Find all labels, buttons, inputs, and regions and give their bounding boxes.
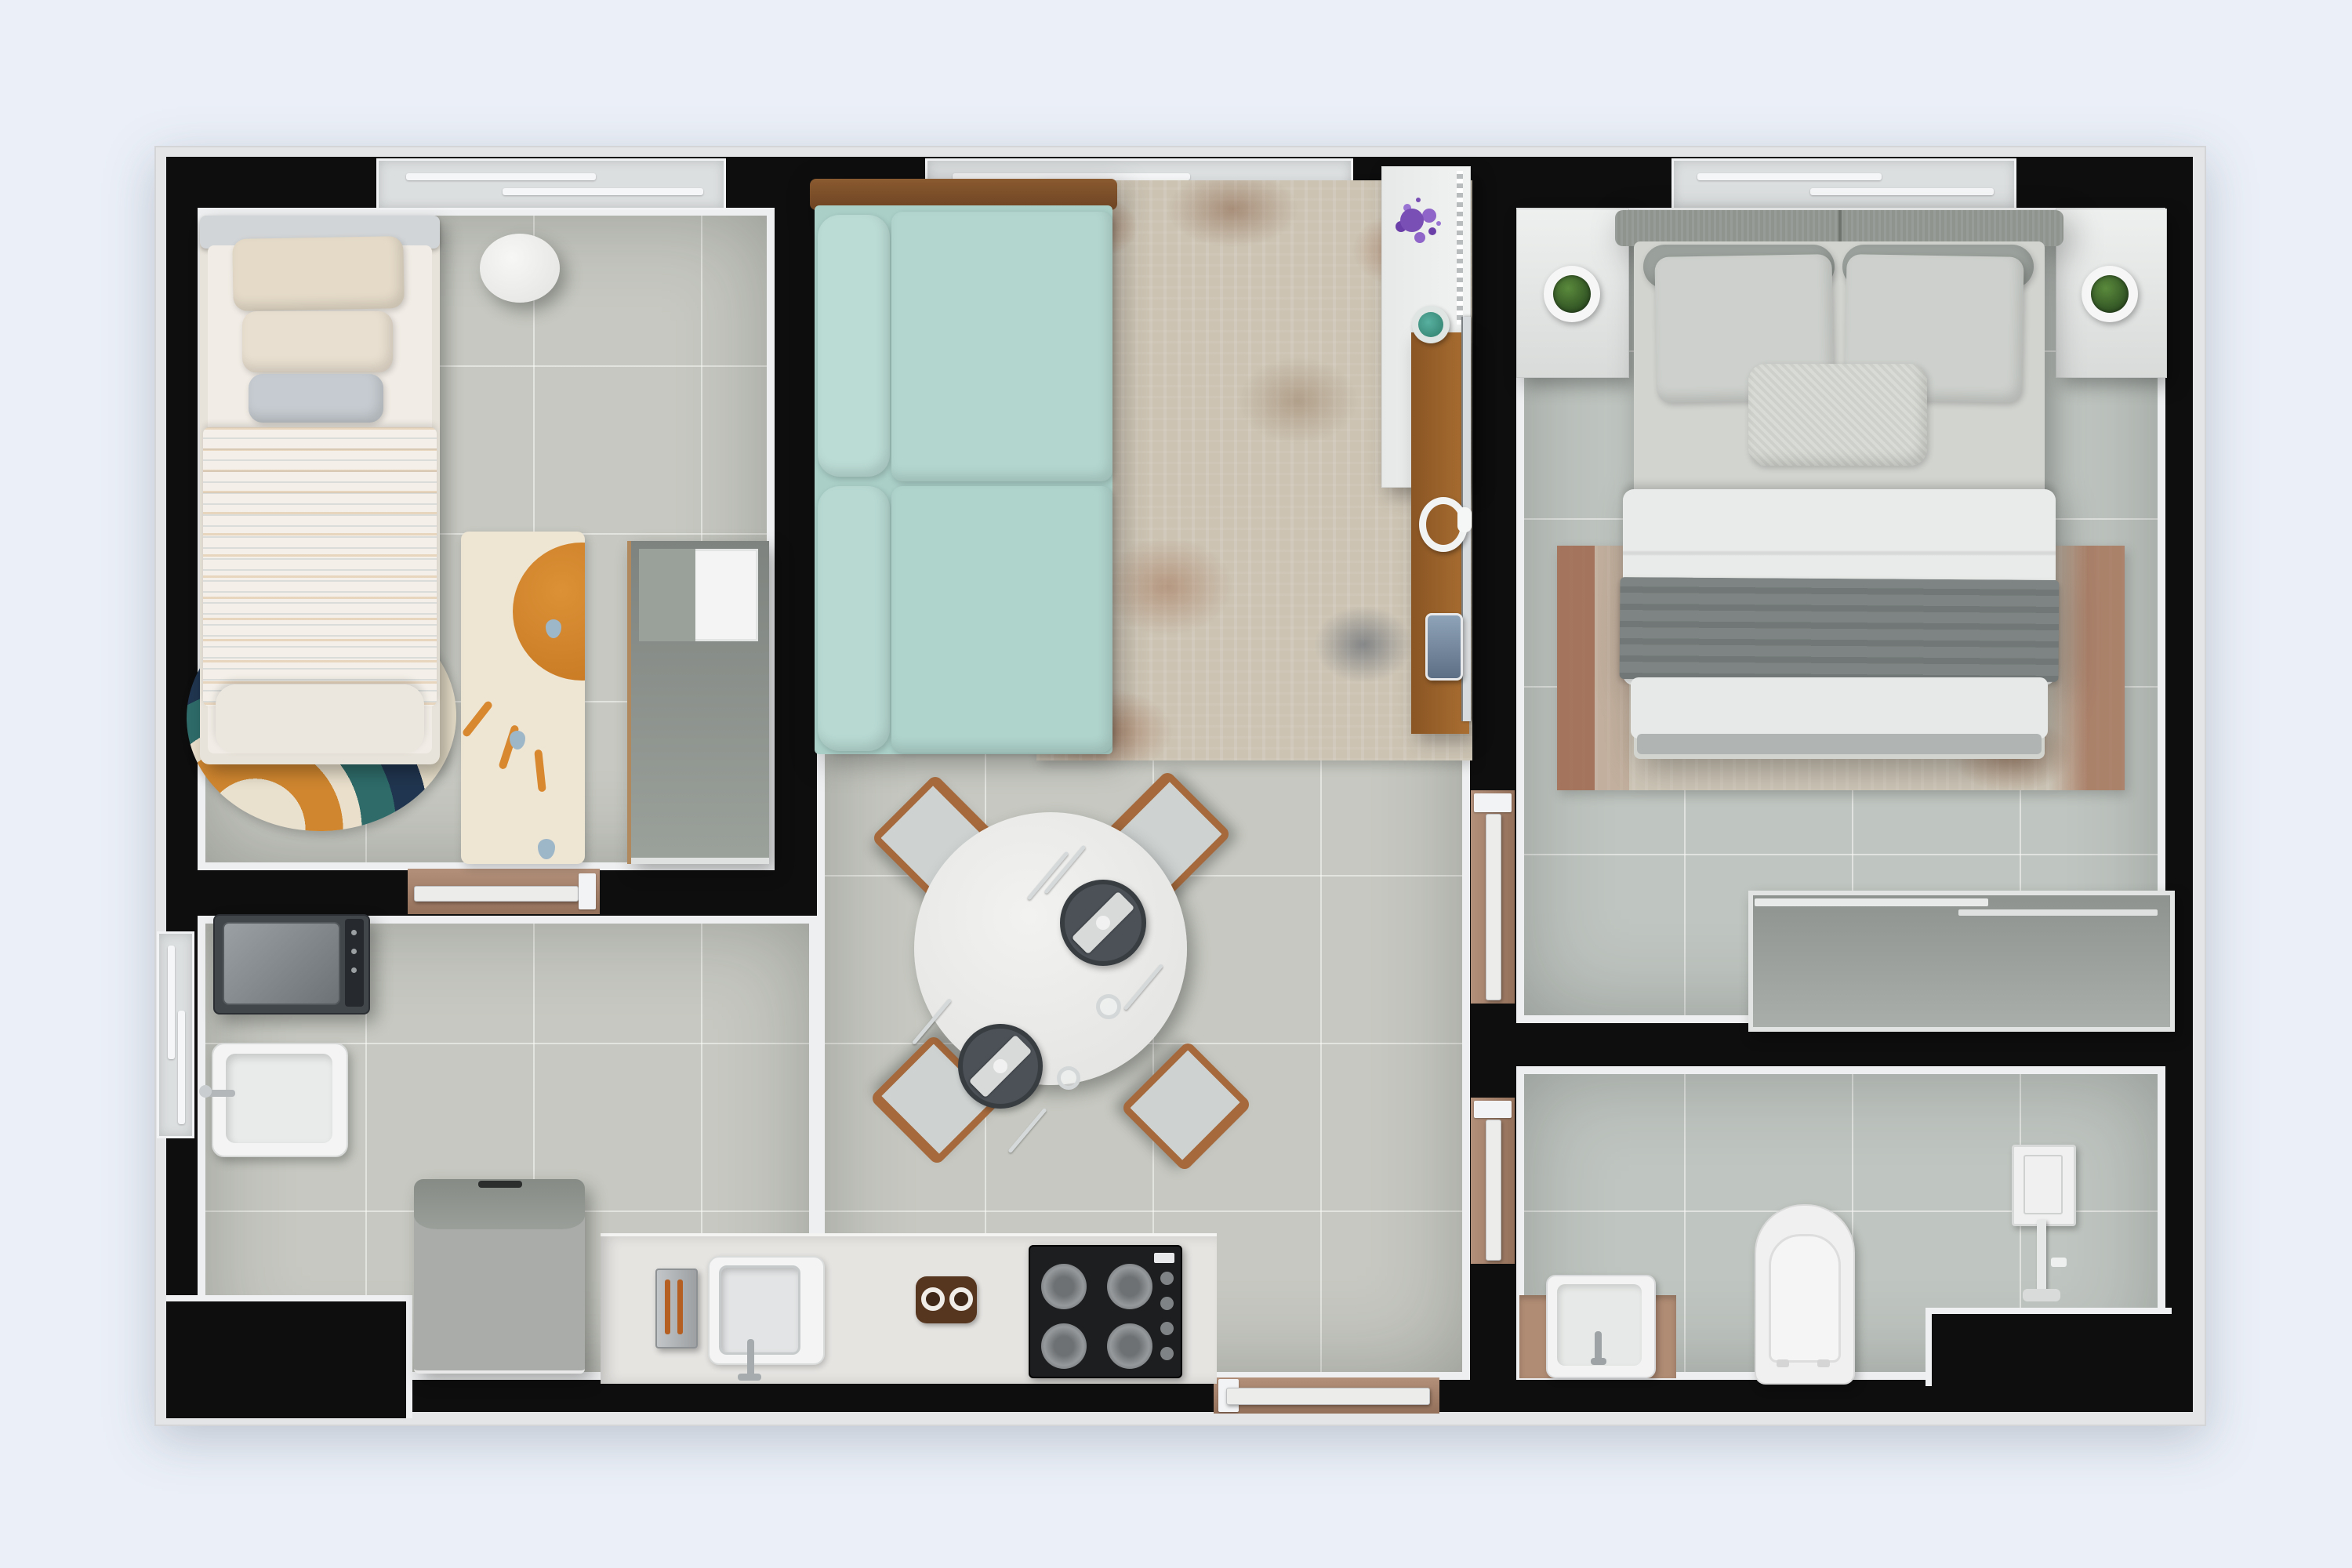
bed-pillow	[242, 311, 393, 372]
bed-throw-blanket	[1620, 577, 2060, 682]
sun-motif	[513, 543, 585, 681]
kids-bed	[200, 216, 440, 764]
kids-wardrobe	[627, 541, 769, 864]
sofa-seat-cushion	[891, 486, 1112, 753]
bed-pillow	[232, 236, 405, 311]
trivet	[916, 1276, 977, 1323]
shower-handle	[2051, 1258, 2067, 1267]
tub-faucet-knob	[199, 1085, 212, 1098]
door-entrance	[1214, 1377, 1439, 1414]
sofa	[810, 179, 1117, 759]
shower-head	[2012, 1145, 2076, 1226]
bed-foot-sheet	[1631, 677, 2048, 739]
toilet	[1755, 1204, 1855, 1385]
headphones	[1419, 497, 1468, 552]
cooktop-knob	[1160, 1322, 1174, 1335]
shower-pole	[2037, 1220, 2046, 1295]
succulent-pot	[1412, 306, 1450, 343]
drinking-glass	[1096, 994, 1121, 1019]
window-kids	[376, 158, 726, 210]
smartphone	[1425, 613, 1463, 681]
sofa-back-cushion	[818, 486, 890, 751]
sideboard-slats	[1457, 171, 1463, 325]
toaster	[655, 1269, 698, 1348]
refrigerator	[414, 1179, 585, 1374]
window-laundry	[157, 931, 194, 1138]
sink-faucet	[738, 1374, 761, 1381]
sofa-back-cushion	[818, 215, 890, 477]
door-kids	[408, 869, 600, 914]
bed-pillow	[249, 374, 383, 423]
wall-notch-laundry	[166, 1295, 412, 1418]
bed-lumbar-pillow	[1748, 364, 1927, 466]
door-bathroom	[1471, 1098, 1515, 1264]
shower-base	[2023, 1289, 2060, 1301]
door-master	[1471, 790, 1515, 1004]
nightstand-left	[1516, 209, 1629, 378]
sofa-seat-cushion	[891, 212, 1112, 481]
cooktop-knob	[1160, 1297, 1174, 1310]
window-master	[1671, 158, 2016, 210]
cooktop-knob	[1160, 1347, 1174, 1360]
place-setting	[958, 1024, 1043, 1109]
sun-rug	[461, 532, 585, 864]
bed-blanket	[203, 427, 437, 706]
bed-base	[1637, 734, 2042, 754]
master-bed	[1629, 210, 2049, 764]
wall-notch-bathroom	[1926, 1308, 2172, 1386]
cooktop-display	[1154, 1253, 1174, 1263]
floorplan-render	[0, 0, 2352, 1568]
nightstand-right	[2056, 209, 2167, 378]
drinking-glass	[1057, 1066, 1080, 1090]
cooktop-knob	[1160, 1272, 1174, 1285]
washing-machine	[213, 914, 370, 1014]
vanity-sink	[1546, 1275, 1656, 1378]
dresser	[1748, 891, 2175, 1032]
wardrobe-open-shelf	[639, 549, 758, 641]
vanity-faucet	[1591, 1358, 1606, 1365]
dining-table	[914, 812, 1187, 1085]
purple-plant	[1400, 209, 1424, 232]
shower-column	[2012, 1145, 2082, 1309]
laundry-tub	[212, 1043, 348, 1157]
bed-foot-duvet	[216, 684, 424, 753]
kids-side-table	[480, 234, 560, 303]
place-setting	[1060, 880, 1146, 966]
kitchen-sink	[708, 1256, 825, 1365]
cooktop	[1029, 1245, 1182, 1378]
